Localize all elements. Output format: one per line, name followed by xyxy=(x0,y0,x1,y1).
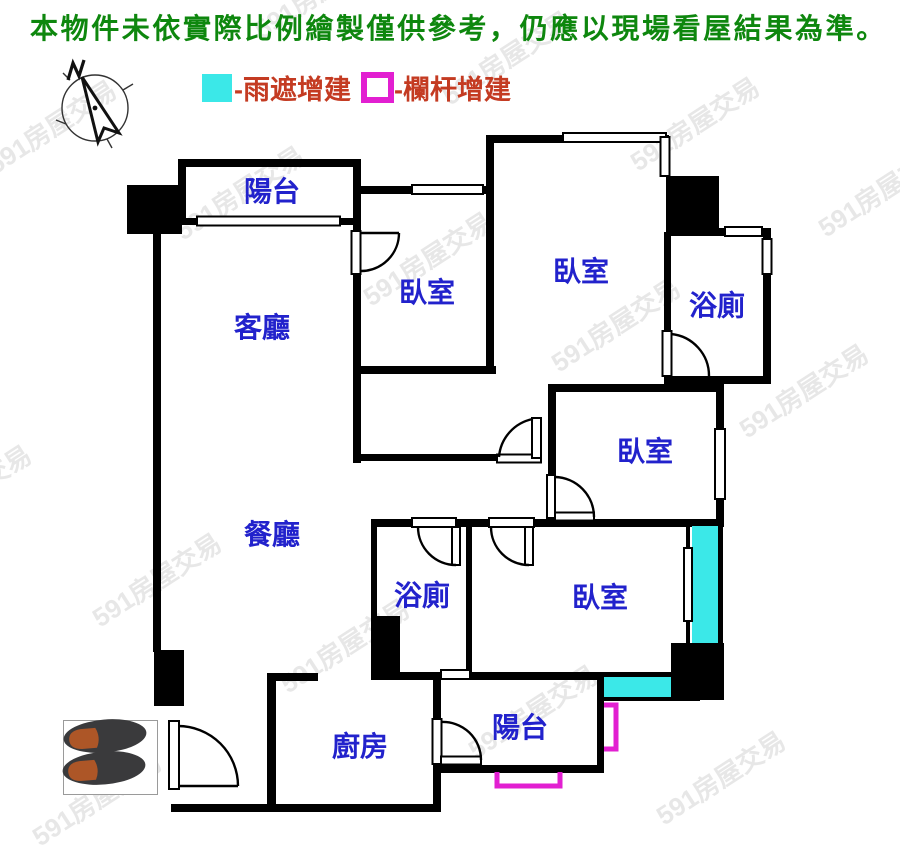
svg-text:臥室: 臥室 xyxy=(399,276,455,308)
svg-text:臥室: 臥室 xyxy=(617,435,673,467)
svg-text:浴廁: 浴廁 xyxy=(394,579,450,611)
svg-text:陽台: 陽台 xyxy=(492,711,548,743)
svg-text:臥室: 臥室 xyxy=(572,581,628,613)
svg-text:浴廁: 浴廁 xyxy=(689,289,745,321)
svg-text:-雨遮增建: -雨遮增建 xyxy=(234,74,351,105)
svg-text:臥室: 臥室 xyxy=(553,255,609,287)
svg-text:餐廳: 餐廳 xyxy=(244,518,300,550)
svg-text:-欄杆增建: -欄杆增建 xyxy=(394,74,511,105)
svg-text:客廳: 客廳 xyxy=(234,311,290,343)
svg-text:陽台: 陽台 xyxy=(244,175,300,207)
svg-text:本物件未依實際比例繪製僅供參考，仍應以現場看屋結果為準。: 本物件未依實際比例繪製僅供參考，仍應以現場看屋結果為準。 xyxy=(30,12,887,44)
svg-text:廚房: 廚房 xyxy=(332,730,388,762)
